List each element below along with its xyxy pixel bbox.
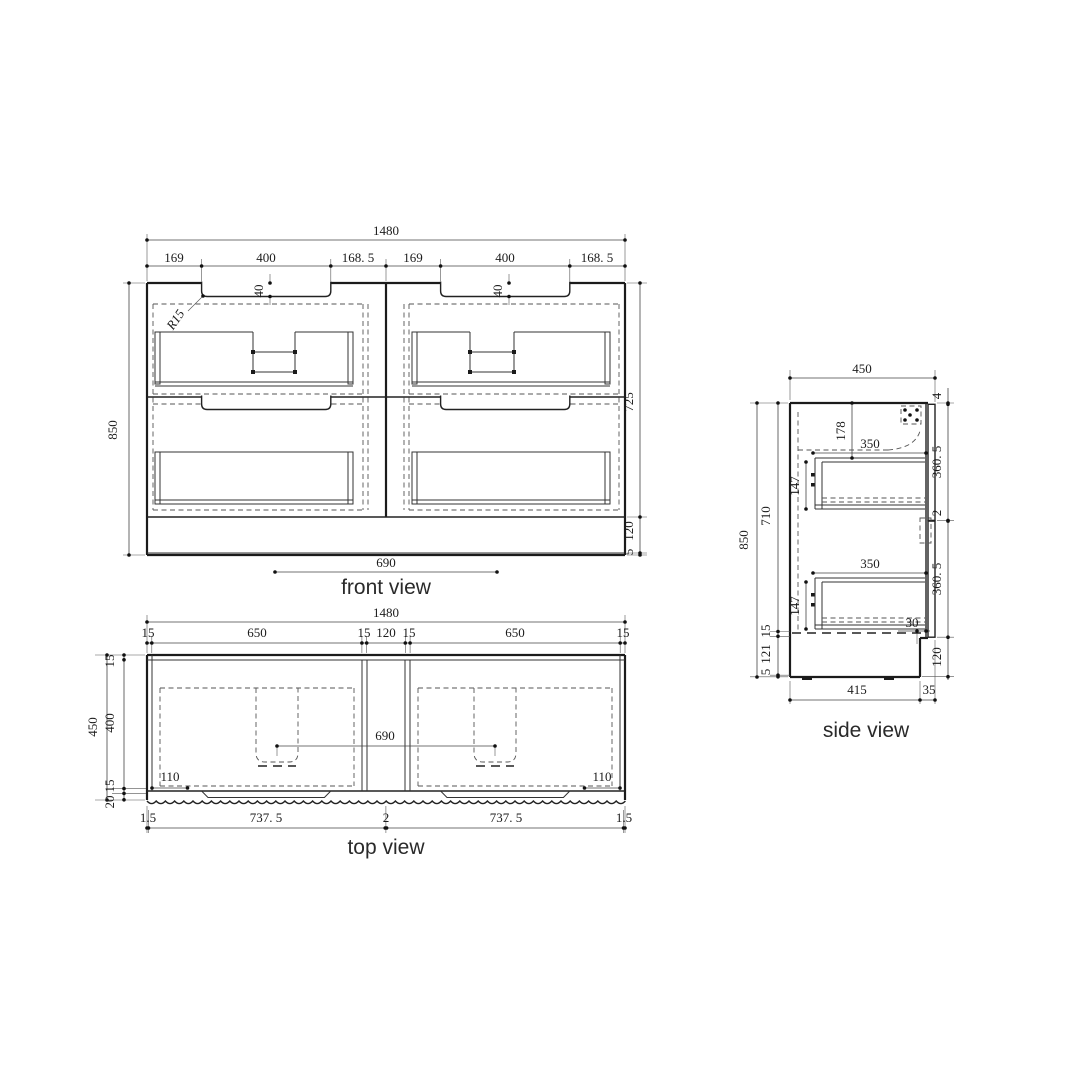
dimension-dot [618, 641, 622, 645]
dimension-label: 168. 5 [342, 250, 375, 265]
panel-rect [348, 332, 353, 384]
dimension-dot [804, 580, 808, 584]
notch-mask [441, 281, 570, 296]
dimension-dot [776, 630, 780, 634]
dimension-dot [408, 641, 412, 645]
notch-mask [202, 281, 331, 296]
dimension-label: 2 [383, 810, 390, 825]
dimension-dot [946, 403, 950, 407]
dimension-dot [329, 264, 333, 268]
dimension-dot [638, 553, 642, 557]
dimension-label: 1.5 [140, 810, 156, 825]
dimension-label: 650 [505, 625, 525, 640]
dimension-label: 450 [85, 717, 100, 737]
dimension-dot [201, 294, 205, 298]
dimension-dot [186, 786, 190, 790]
dimension-dot [623, 264, 627, 268]
dimension-label: 737. 5 [490, 810, 523, 825]
dimension-label: 35 [923, 682, 936, 697]
fitting-mark [884, 677, 894, 680]
dimension-label: 110 [160, 769, 179, 784]
dimension-label: 4 [929, 392, 944, 399]
dimension-label: 147 [787, 476, 802, 496]
dimension-dot [268, 295, 272, 299]
dimension-dot [946, 635, 950, 639]
dimension-dot [145, 620, 149, 624]
dimension-dot [908, 413, 912, 417]
dimension-label: 5 [621, 549, 636, 556]
dimension-label: 15 [758, 625, 773, 638]
dimension-dot [915, 418, 919, 422]
panel-rect [470, 352, 514, 372]
dimension-dot [145, 264, 149, 268]
panel-rect [348, 452, 353, 504]
fitting-mark [811, 483, 815, 487]
dimension-label: 178 [833, 421, 848, 441]
dimension-label: 30 [906, 615, 919, 630]
dimension-label: 15 [102, 655, 117, 668]
dimension-dot [776, 635, 780, 639]
dimension-label: 1.5 [616, 810, 632, 825]
dimension-label: 400 [102, 713, 117, 733]
dimension-dot [568, 264, 572, 268]
dimension-label: 2 [929, 510, 944, 517]
dimension-label: 1480 [373, 223, 399, 238]
dimension-dot [811, 451, 815, 455]
dimension-dot [583, 786, 587, 790]
panel-rect [605, 452, 610, 504]
fitting-mark [293, 370, 297, 374]
dimension-dot [924, 451, 928, 455]
dimension-dot [638, 515, 642, 519]
dimension-dot [122, 787, 126, 791]
front-view: 1480169400168. 5169400168. 54040R1585072… [105, 223, 647, 599]
dimension-dot [127, 281, 131, 285]
dimension-label: 690 [376, 555, 396, 570]
dimension-label: 710 [758, 506, 773, 526]
dimension-dot [776, 675, 780, 679]
dimension-dot [618, 786, 622, 790]
dimension-dot [122, 792, 126, 796]
dimension-label: 169 [403, 250, 423, 265]
dimension-dot [623, 238, 627, 242]
dimension-dot [933, 698, 937, 702]
dimension-dot [933, 376, 937, 380]
dimension-label: 147 [787, 596, 802, 616]
dimension-label: 40 [490, 285, 505, 298]
dimension-dot [273, 570, 277, 574]
dimension-label: 168. 5 [581, 250, 614, 265]
fitting-mark [251, 350, 255, 354]
dimension-dot [638, 281, 642, 285]
dimension-label: 400 [495, 250, 515, 265]
dimension-label: 120 [929, 647, 944, 667]
dimension-label: 5 [758, 669, 773, 676]
dimension-label: 1480 [373, 605, 399, 620]
dimension-dot [495, 570, 499, 574]
dimension-label: 690 [375, 728, 395, 743]
dimension-dot [122, 658, 126, 662]
dimension-dot [623, 641, 627, 645]
technical-drawing: 1480169400168. 5169400168. 54040R1585072… [0, 0, 1080, 1080]
dimension-dot [404, 641, 408, 645]
dimension-label: 850 [105, 420, 120, 440]
fitting-mark [811, 603, 815, 607]
dimension-dot [147, 826, 151, 830]
dimension-label: 110 [592, 769, 611, 784]
dimension-dot [385, 826, 389, 830]
fitting-mark [811, 473, 815, 477]
top-view: 1480156501512015650154501540015206901101… [85, 605, 632, 859]
dimension-label: R15 [163, 306, 188, 333]
dimension-dot [811, 571, 815, 575]
fitting-mark [802, 677, 812, 680]
dimension-dot [924, 629, 928, 633]
fitting-mark [811, 593, 815, 597]
panel-rect [412, 332, 417, 384]
dimension-dot [623, 620, 627, 624]
dimension-dot [804, 627, 808, 631]
dimension-label: 120 [376, 625, 396, 640]
dimension-dot [755, 401, 759, 405]
profile-path [441, 791, 570, 798]
drawing-canvas: 1480169400168. 5169400168. 54040R1585072… [0, 0, 1080, 1080]
panel-rect [253, 352, 295, 372]
dimension-dot [122, 653, 126, 657]
dimension-dot [915, 408, 919, 412]
dimension-label: 15 [617, 625, 630, 640]
dimension-dot [918, 698, 922, 702]
fitting-mark [468, 370, 472, 374]
dimension-dot [150, 786, 154, 790]
dimension-label: 15 [403, 625, 416, 640]
view-label: front view [341, 576, 432, 599]
notch-mask [202, 395, 331, 409]
panel-rect [605, 332, 610, 384]
fitting-mark [293, 350, 297, 354]
profile-path [147, 801, 625, 804]
dimension-dot [804, 507, 808, 511]
dimension-dot [439, 264, 443, 268]
dimension-dot [788, 698, 792, 702]
dimension-label: 360. 5 [929, 446, 944, 479]
dimension-dot [384, 264, 388, 268]
panel-rect [155, 452, 160, 504]
dimension-label: 120 [621, 521, 636, 541]
dimension-label: 415 [847, 682, 867, 697]
dimension-label: 20 [102, 796, 117, 809]
dimension-label: 737. 5 [250, 810, 283, 825]
fitting-mark [512, 370, 516, 374]
fitting-mark [251, 370, 255, 374]
dimension-label: 850 [736, 530, 751, 550]
dimension-label: 15 [358, 625, 371, 640]
dimension-dot [924, 571, 928, 575]
dashed-path [888, 431, 920, 450]
panel-rect [412, 452, 417, 504]
dimension-dot [360, 641, 364, 645]
fitting-mark [468, 350, 472, 354]
dimension-label: 121 [758, 644, 773, 664]
dimension-label: 40 [251, 285, 266, 298]
dimension-label: 400 [256, 250, 276, 265]
dimension-dot [150, 641, 154, 645]
dimension-label: 450 [852, 361, 872, 376]
fitting-mark [512, 350, 516, 354]
dimension-dot [122, 798, 126, 802]
panel-rect [155, 332, 160, 384]
view-label: side view [823, 719, 910, 742]
dimension-dot [903, 408, 907, 412]
dimension-dot [788, 376, 792, 380]
dimension-label: 15 [142, 625, 155, 640]
dimension-dot [145, 641, 149, 645]
dimension-dot [127, 553, 131, 557]
notch-mask [441, 395, 570, 409]
dimension-label: 350 [860, 436, 880, 451]
dimension-dot [365, 641, 369, 645]
dimension-dot [200, 264, 204, 268]
dimension-dot [903, 418, 907, 422]
dimension-dot [507, 295, 511, 299]
dimension-label: 360. 5 [929, 563, 944, 596]
dimension-dot [946, 675, 950, 679]
dimension-dot [507, 281, 511, 285]
dimension-dot [145, 238, 149, 242]
dimension-label: 350 [860, 556, 880, 571]
dimension-dot [623, 826, 627, 830]
dimension-label: 169 [164, 250, 184, 265]
profile-path [202, 791, 331, 798]
dimension-dot [850, 401, 854, 405]
dimension-dot [493, 744, 497, 748]
dimension-label: 650 [247, 625, 267, 640]
dimension-dot [850, 456, 854, 460]
dimension-dot [268, 281, 272, 285]
view-label: top view [347, 836, 425, 859]
dimension-dot [804, 460, 808, 464]
dimension-dot [776, 401, 780, 405]
dimension-dot [275, 744, 279, 748]
side-view: 4504360. 52360. 512085071015121517835035… [736, 361, 954, 742]
dimension-label: 725 [621, 392, 636, 412]
dimension-dot [946, 519, 950, 523]
dimension-label: 15 [102, 780, 117, 793]
